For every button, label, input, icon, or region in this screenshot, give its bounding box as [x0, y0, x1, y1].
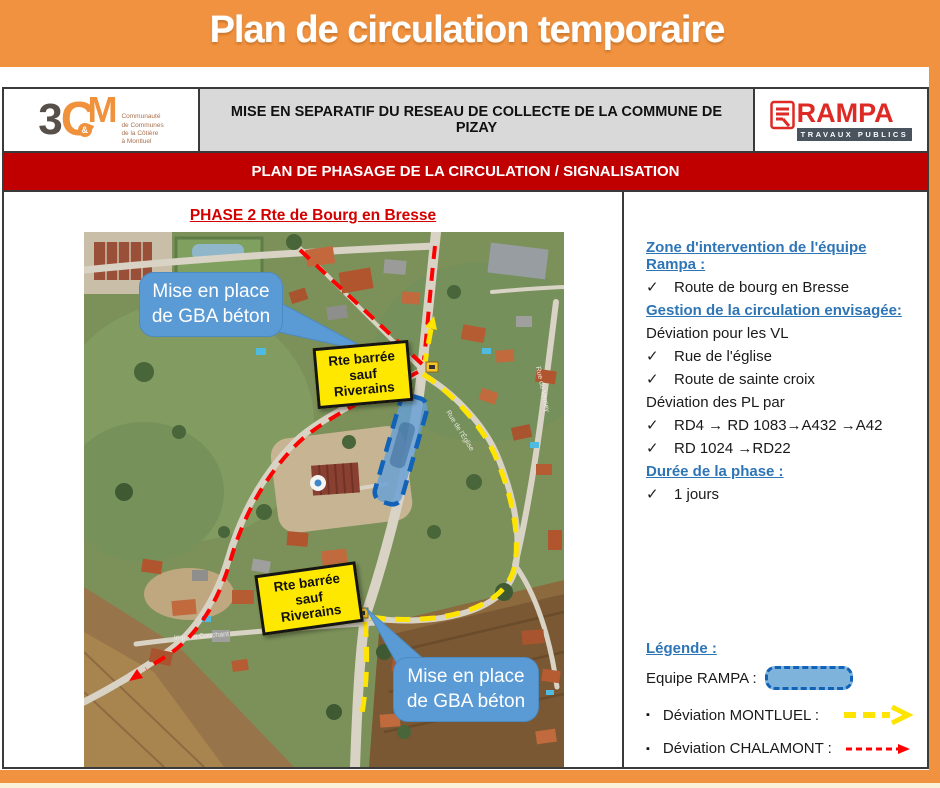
- legend-item-montluel: ▪ Déviation MONTLUEL :: [646, 705, 916, 725]
- list-item: ✓ 1 jours: [646, 486, 913, 503]
- list-item: ✓ RD4 → RD 1083→A432 →A42: [646, 417, 913, 434]
- check-icon: ✓: [646, 440, 674, 457]
- page-title: Plan de circulation temporaire: [0, 9, 934, 52]
- duration-heading: Durée de la phase :: [646, 463, 913, 480]
- check-icon: ✓: [646, 348, 674, 365]
- gestion-heading: Gestion de la circulation envisagée:: [646, 302, 913, 319]
- legend-heading: Légende :: [646, 640, 916, 657]
- logo-rampa: RAMPA TRAVAUX PUBLICS: [755, 89, 927, 151]
- work-zone-swatch: [765, 666, 853, 690]
- pl-label: Déviation des PL par: [646, 394, 913, 411]
- red-dashed-arrow-icon: [842, 743, 914, 755]
- rampa-icon: [770, 100, 797, 130]
- vl-label: Déviation pour les VL: [646, 325, 913, 342]
- rampa-subtitle: TRAVAUX PUBLICS: [797, 128, 913, 141]
- phase-title: PHASE 2 Rte de Bourg en Bresse: [4, 207, 622, 225]
- yellow-dashed-arrow-icon: [842, 705, 914, 725]
- right-orange-band: [929, 0, 940, 783]
- check-icon: ✓: [646, 371, 674, 388]
- list-item: ✓ RD 1024 →RD22: [646, 440, 913, 457]
- bullet-icon: ▪: [646, 743, 650, 755]
- document-title: MISE EN SEPARATIF DU RESEAU DE COLLECTE …: [200, 89, 755, 151]
- road-closed-sign: Rte barrée sauf Riverains: [313, 340, 414, 409]
- rampa-wordmark: RAMPA: [797, 100, 913, 127]
- document-header: 3 C & M Communauté de Communes de la Côt…: [4, 89, 927, 153]
- road-sign-marker: [426, 362, 438, 372]
- bottom-cream-strip: [0, 783, 940, 788]
- logo-3cm-subtitle: Communauté de Communes de la Côtière à M…: [121, 113, 163, 147]
- phasing-banner: PLAN DE PHASAGE DE LA CIRCULATION / SIGN…: [4, 153, 927, 192]
- zone-heading: Zone d'intervention de l'équipe Rampa :: [646, 239, 913, 273]
- legend-equipe-rampa: Equipe RAMPA :: [646, 666, 916, 690]
- map-panel: PHASE 2 Rte de Bourg en Bresse: [4, 192, 624, 767]
- logo-3cm-digit: 3: [38, 98, 62, 142]
- legend: Légende : Equipe RAMPA : ▪ Déviation MON…: [646, 640, 916, 757]
- list-item: ✓ Route de bourg en Bresse: [646, 279, 913, 296]
- legend-item-chalamont: ▪ Déviation CHALAMONT :: [646, 740, 916, 757]
- aerial-map: Rue de l'Église Rue du Verney Imp. du Co…: [84, 232, 564, 767]
- info-panel: Zone d'intervention de l'équipe Rampa : …: [624, 192, 927, 767]
- logo-3cm: 3 C & M Communauté de Communes de la Côt…: [4, 89, 200, 151]
- bottom-orange-band: [0, 770, 940, 783]
- check-icon: ✓: [646, 279, 674, 296]
- list-item: ✓ Rue de l'église: [646, 348, 913, 365]
- bullet-icon: ▪: [646, 709, 650, 721]
- callout-gba-top: Mise en place de GBA béton: [139, 272, 283, 337]
- check-icon: ✓: [646, 486, 674, 503]
- list-item: ✓ Route de sainte croix: [646, 371, 913, 388]
- check-icon: ✓: [646, 417, 674, 434]
- callout-gba-bottom: Mise en place de GBA béton: [393, 657, 539, 722]
- plan-document: 3 C & M Communauté de Communes de la Côt…: [2, 87, 929, 769]
- photo-marker-icon: [310, 475, 326, 491]
- logo-3cm-letter-m: M: [87, 92, 117, 128]
